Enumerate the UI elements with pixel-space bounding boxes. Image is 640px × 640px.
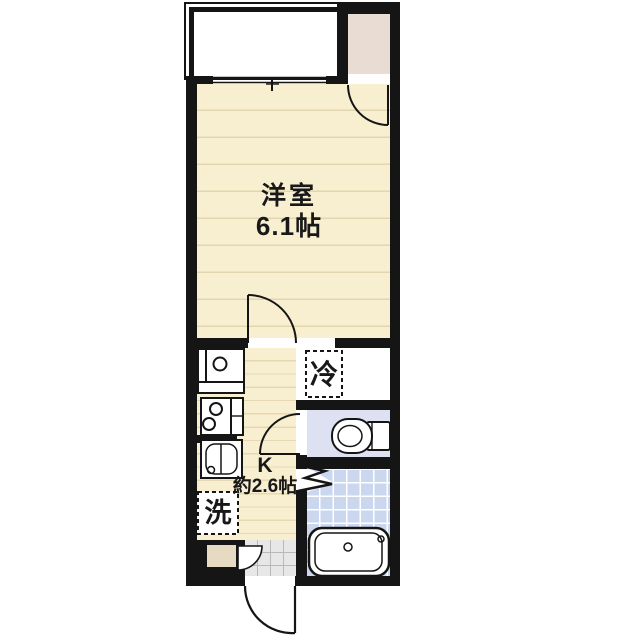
- kitchen-label: K: [235, 454, 295, 477]
- toilet-fixture: [332, 419, 390, 453]
- entry-door-arc: [245, 586, 295, 633]
- western-room-size: 6.1帖: [239, 212, 339, 241]
- floorplan-canvas: 洋室 6.1帖 K 約2.6帖 冷 洗: [0, 0, 640, 640]
- toilet-door-arc: [260, 414, 300, 454]
- closet-door-arc: [348, 85, 388, 125]
- stove-fixture: [201, 398, 243, 435]
- refrigerator-label: 冷: [306, 352, 342, 398]
- shoe-cabinet-door-arc: [238, 546, 262, 570]
- sink-fixture: [198, 349, 244, 393]
- western-room-label: 洋室: [239, 183, 339, 211]
- floorplan-linework: [0, 0, 640, 640]
- window-symbol: [212, 77, 330, 91]
- shoe-cabinet: [207, 545, 236, 567]
- washer-label: 洗: [198, 492, 238, 534]
- bathtub-fixture: [309, 528, 389, 576]
- room-door-arc: [248, 295, 296, 343]
